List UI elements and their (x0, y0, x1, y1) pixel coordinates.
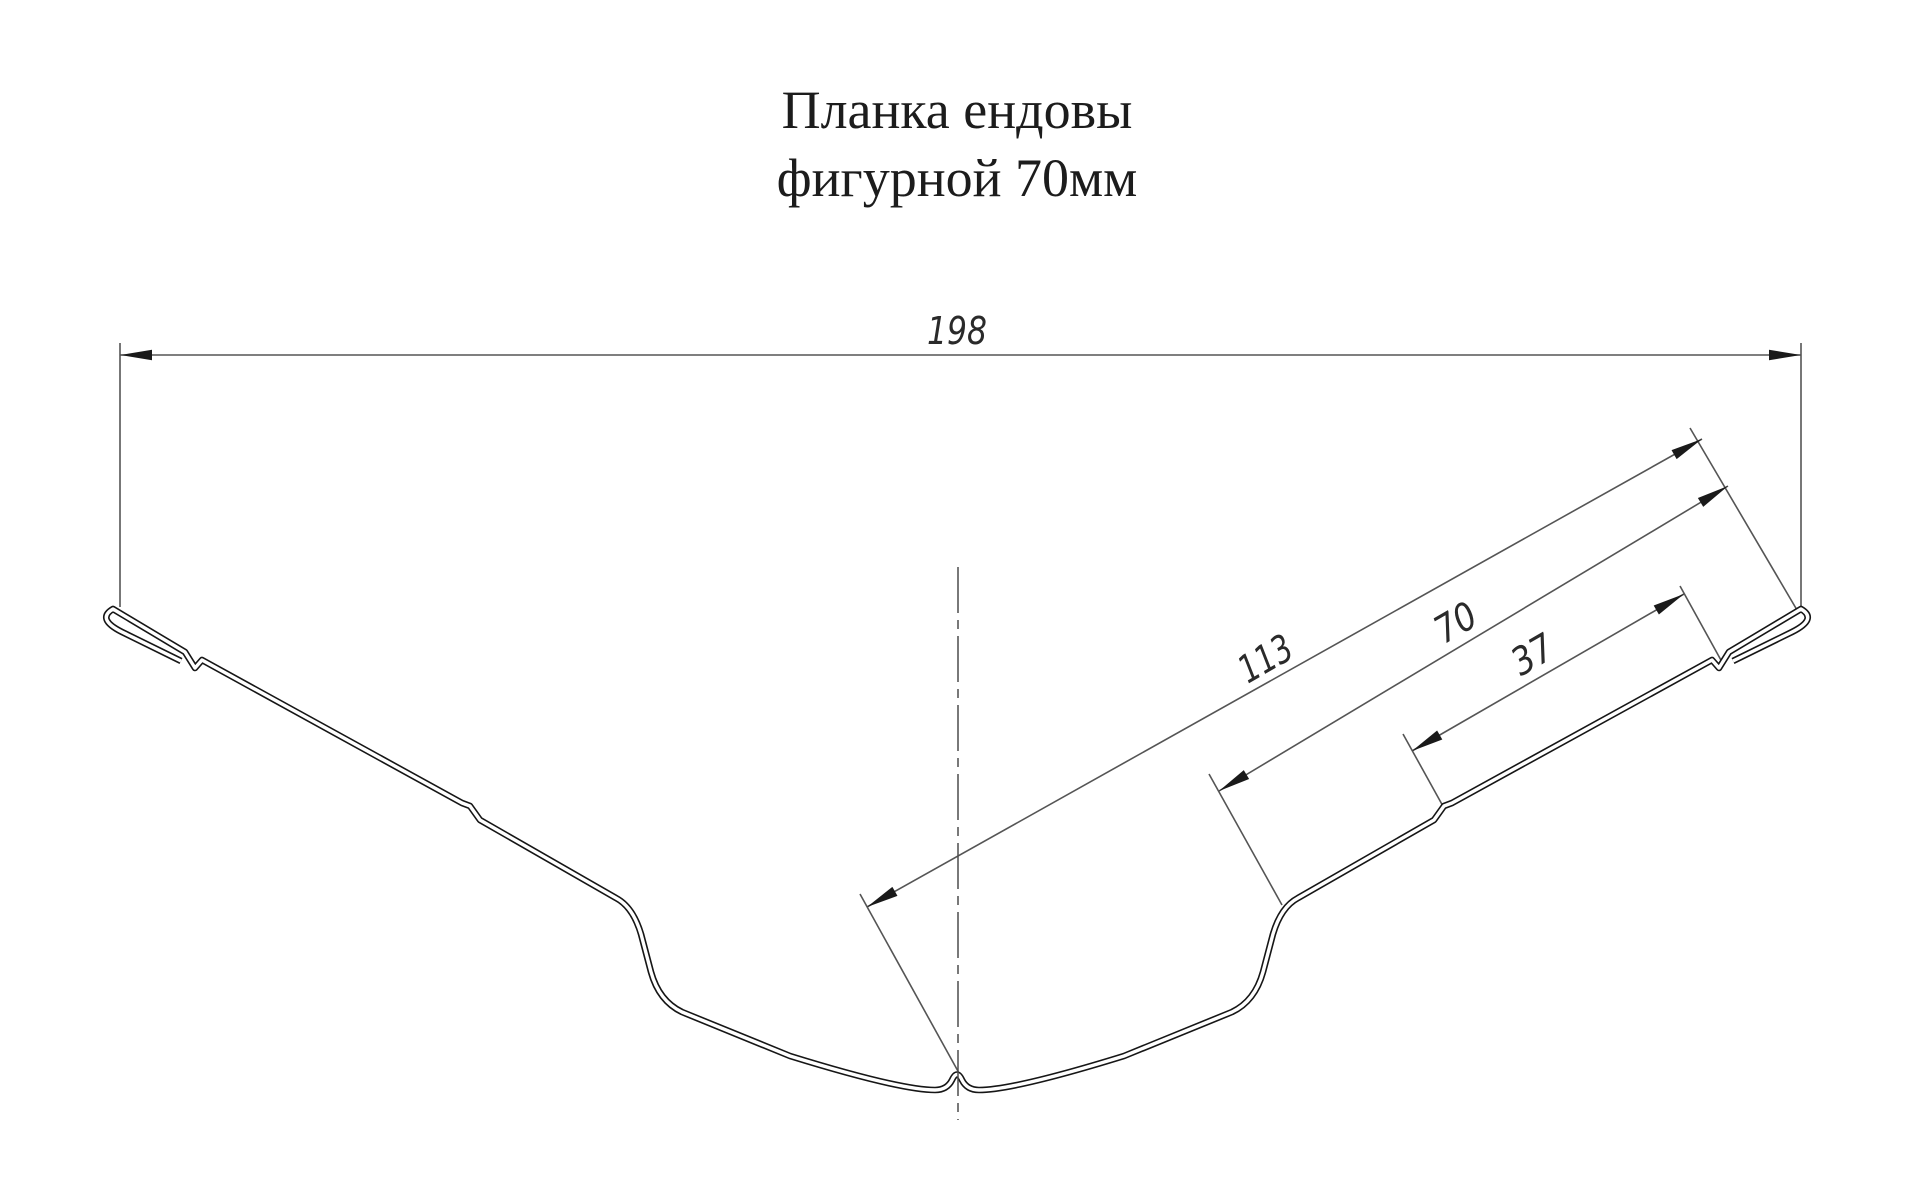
valley-strip-profile-outline (106, 609, 1807, 1090)
extension-line-bend (1209, 774, 1282, 905)
dimension-label-113: 113 (1230, 626, 1300, 692)
dimension-overall-width: 198 (120, 309, 1801, 607)
dimension-label-37: 37 (1503, 625, 1561, 684)
valley-strip-profile-core (106, 609, 1807, 1090)
drawing-page: Планка ендовы фигурной 70мм 198 113 70 (0, 0, 1920, 1200)
title-line-1: Планка ендовы (782, 80, 1133, 140)
dimension-center-to-edge: 113 (860, 439, 1702, 1073)
extension-line-center (860, 894, 959, 1073)
extension-line-edge (1690, 428, 1797, 610)
extension-line-hem-step (1680, 586, 1722, 662)
dimension-line-70 (1219, 486, 1728, 791)
dimension-label-overall-width: 198 (927, 309, 987, 353)
dimension-label-70: 70 (1426, 593, 1484, 652)
drawing-title: Планка ендовы фигурной 70мм (777, 80, 1138, 208)
title-line-2: фигурной 70мм (777, 148, 1138, 208)
technical-drawing: Планка ендовы фигурной 70мм 198 113 70 (0, 0, 1920, 1200)
